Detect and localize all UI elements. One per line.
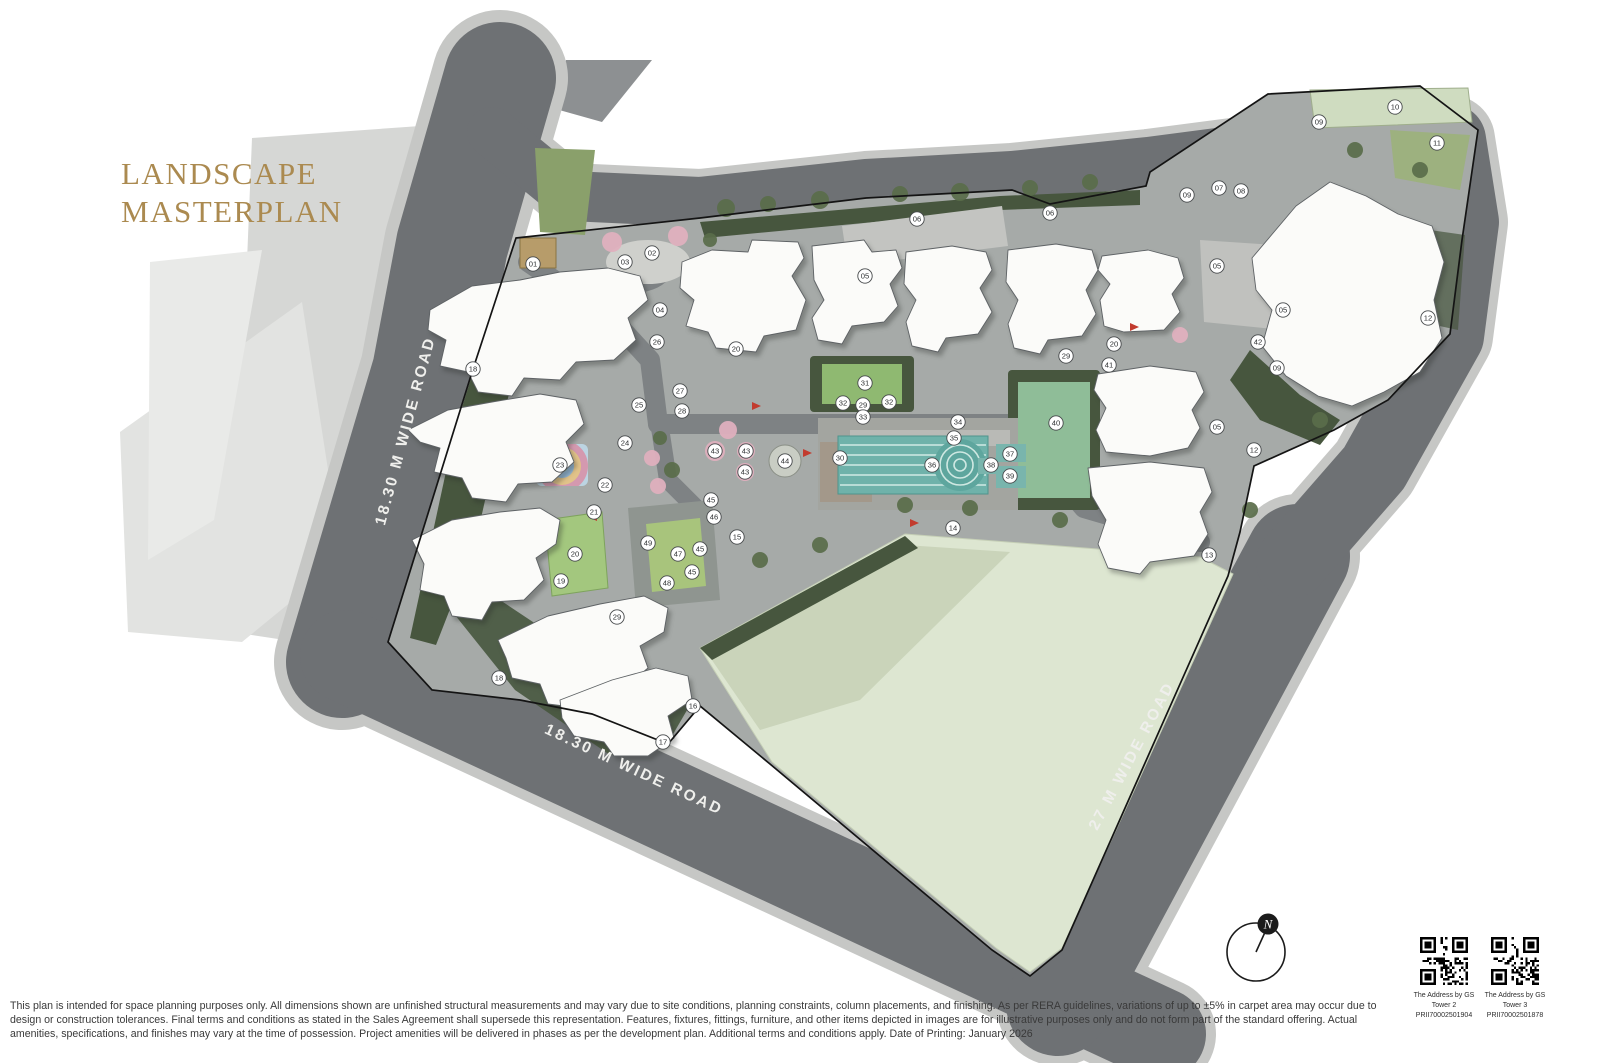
plan-marker-23: 23 <box>553 458 567 472</box>
svg-text:43: 43 <box>711 447 719 456</box>
svg-text:20: 20 <box>1110 340 1118 349</box>
svg-text:16: 16 <box>689 702 697 711</box>
svg-text:37: 37 <box>1006 450 1014 459</box>
svg-text:06: 06 <box>913 215 921 224</box>
plan-marker-20: 20 <box>568 547 582 561</box>
svg-text:43: 43 <box>742 447 750 456</box>
plan-marker-32: 32 <box>836 396 850 410</box>
plan-marker-26: 26 <box>650 335 664 349</box>
svg-text:09: 09 <box>1315 118 1323 127</box>
plan-marker-45: 45 <box>685 565 699 579</box>
svg-text:20: 20 <box>571 550 579 559</box>
disclaimer-text: This plan is intended for space planning… <box>10 999 1402 1041</box>
plan-marker-18: 18 <box>466 362 480 376</box>
plan-marker-44: 44 <box>778 454 792 468</box>
plan-marker-48: 48 <box>660 576 674 590</box>
svg-text:26: 26 <box>653 338 661 347</box>
swimming-pool-36 <box>838 436 988 494</box>
svg-text:02: 02 <box>648 249 656 258</box>
svg-text:05: 05 <box>1213 423 1221 432</box>
svg-text:09: 09 <box>1273 364 1281 373</box>
plan-marker-24: 24 <box>618 436 632 450</box>
qr-caption-tower: Tower 2 <box>1404 1001 1484 1011</box>
plan-marker-13: 13 <box>1202 548 1216 562</box>
svg-text:38: 38 <box>987 461 995 470</box>
svg-text:35: 35 <box>950 434 958 443</box>
qr-caption-project: The Address by GS <box>1475 991 1555 1001</box>
plan-marker-39: 39 <box>1003 469 1017 483</box>
svg-text:15: 15 <box>733 533 741 542</box>
plan-marker-05: 05 <box>1210 420 1224 434</box>
plan-marker-31: 31 <box>858 376 872 390</box>
plan-marker-29: 29 <box>610 610 624 624</box>
svg-text:09: 09 <box>1183 191 1191 200</box>
svg-text:33: 33 <box>859 413 867 422</box>
svg-text:40: 40 <box>1052 419 1060 428</box>
plan-marker-05: 05 <box>1276 303 1290 317</box>
qr-caption-rera: PRII70002501878 <box>1475 1011 1555 1021</box>
plan-marker-12: 12 <box>1247 443 1261 457</box>
svg-text:32: 32 <box>885 398 893 407</box>
svg-text:31: 31 <box>861 379 869 388</box>
plan-marker-20: 20 <box>1107 337 1121 351</box>
plan-marker-28: 28 <box>675 404 689 418</box>
plan-marker-10: 10 <box>1388 100 1402 114</box>
qr-caption-project: The Address by GS <box>1404 991 1484 1001</box>
svg-text:39: 39 <box>1006 472 1014 481</box>
plan-marker-16: 16 <box>686 699 700 713</box>
plan-marker-14: 14 <box>946 521 960 535</box>
qr-caption-rera: PRII70002501904 <box>1404 1011 1484 1021</box>
plan-marker-21: 21 <box>587 505 601 519</box>
svg-text:18: 18 <box>495 674 503 683</box>
svg-text:12: 12 <box>1424 314 1432 323</box>
qr-caption-tower: Tower 3 <box>1475 1001 1555 1011</box>
svg-text:19: 19 <box>557 577 565 586</box>
plan-marker-43: 43 <box>739 444 753 458</box>
svg-text:44: 44 <box>781 457 789 466</box>
plan-marker-17: 17 <box>656 735 670 749</box>
sports-court-40 <box>1018 382 1090 498</box>
svg-text:05: 05 <box>1213 262 1221 271</box>
svg-text:43: 43 <box>741 468 749 477</box>
svg-text:27: 27 <box>676 387 684 396</box>
svg-text:29: 29 <box>1062 352 1070 361</box>
plan-marker-19: 19 <box>554 574 568 588</box>
svg-text:01: 01 <box>529 260 537 269</box>
plan-marker-40: 40 <box>1049 416 1063 430</box>
svg-text:45: 45 <box>707 496 715 505</box>
plan-marker-22: 22 <box>598 478 612 492</box>
qr-code-tower-3 <box>1491 937 1539 985</box>
plan-marker-20: 20 <box>729 342 743 356</box>
qr-code-tower-2 <box>1420 937 1468 985</box>
svg-text:08: 08 <box>1237 187 1245 196</box>
plan-marker-15: 15 <box>730 530 744 544</box>
plan-marker-05: 05 <box>1210 259 1224 273</box>
qr-caption-tower-2: The Address by GS Tower 2 PRII7000250190… <box>1404 991 1484 1021</box>
plan-marker-45: 45 <box>693 542 707 556</box>
svg-text:05: 05 <box>861 272 869 281</box>
svg-text:23: 23 <box>556 461 564 470</box>
plan-marker-11: 11 <box>1430 136 1444 150</box>
svg-text:49: 49 <box>644 539 652 548</box>
page-title-line1: LANDSCAPE <box>121 155 343 193</box>
plan-marker-35: 35 <box>947 431 961 445</box>
svg-text:34: 34 <box>954 418 962 427</box>
page-title: LANDSCAPE MASTERPLAN <box>121 155 343 231</box>
qr-caption-tower-3: The Address by GS Tower 3 PRII7000250187… <box>1475 991 1555 1021</box>
plan-marker-05: 05 <box>858 269 872 283</box>
svg-text:11: 11 <box>1433 139 1441 148</box>
svg-text:30: 30 <box>836 454 844 463</box>
plan-marker-09: 09 <box>1270 361 1284 375</box>
svg-text:47: 47 <box>674 550 682 559</box>
plan-marker-33: 33 <box>856 410 870 424</box>
svg-text:24: 24 <box>621 439 629 448</box>
compass-north-label: N <box>1263 917 1274 932</box>
plan-marker-06: 06 <box>910 212 924 226</box>
plan-marker-37: 37 <box>1003 447 1017 461</box>
page-title-line2: MASTERPLAN <box>121 193 343 231</box>
svg-text:25: 25 <box>635 401 643 410</box>
north-compass-icon: N <box>1200 893 1312 1005</box>
svg-text:21: 21 <box>590 508 598 517</box>
plan-marker-09: 09 <box>1312 115 1326 129</box>
plan-marker-03: 03 <box>618 255 632 269</box>
plan-marker-43: 43 <box>738 465 752 479</box>
svg-text:14: 14 <box>949 524 957 533</box>
plan-marker-12: 12 <box>1421 311 1435 325</box>
plan-marker-06: 06 <box>1043 206 1057 220</box>
plan-marker-36: 36 <box>925 458 939 472</box>
svg-text:06: 06 <box>1046 209 1054 218</box>
plan-marker-42: 42 <box>1251 335 1265 349</box>
svg-text:17: 17 <box>659 738 667 747</box>
plan-marker-07: 07 <box>1212 181 1226 195</box>
plan-marker-38: 38 <box>984 458 998 472</box>
plan-marker-34: 34 <box>951 415 965 429</box>
svg-text:42: 42 <box>1254 338 1262 347</box>
plan-marker-32: 32 <box>882 395 896 409</box>
plan-marker-47: 47 <box>671 547 685 561</box>
svg-text:05: 05 <box>1279 306 1287 315</box>
svg-text:41: 41 <box>1105 361 1113 370</box>
svg-text:04: 04 <box>656 306 664 315</box>
plan-marker-41: 41 <box>1102 358 1116 372</box>
plan-marker-01: 01 <box>526 257 540 271</box>
plan-marker-02: 02 <box>645 246 659 260</box>
plan-marker-08: 08 <box>1234 184 1248 198</box>
svg-text:45: 45 <box>688 568 696 577</box>
svg-text:32: 32 <box>839 399 847 408</box>
plan-marker-49: 49 <box>641 536 655 550</box>
plan-marker-09: 09 <box>1180 188 1194 202</box>
plan-marker-25: 25 <box>632 398 646 412</box>
svg-text:10: 10 <box>1391 103 1399 112</box>
svg-text:29: 29 <box>613 613 621 622</box>
svg-text:48: 48 <box>663 579 671 588</box>
plan-marker-29: 29 <box>1059 349 1073 363</box>
plan-marker-45: 45 <box>704 493 718 507</box>
svg-text:46: 46 <box>710 513 718 522</box>
svg-text:20: 20 <box>732 345 740 354</box>
svg-text:22: 22 <box>601 481 609 490</box>
plan-marker-43: 43 <box>708 444 722 458</box>
plan-marker-30: 30 <box>833 451 847 465</box>
svg-text:07: 07 <box>1215 184 1223 193</box>
svg-text:03: 03 <box>621 258 629 267</box>
plan-marker-27: 27 <box>673 384 687 398</box>
plan-marker-18: 18 <box>492 671 506 685</box>
svg-text:18: 18 <box>469 365 477 374</box>
svg-text:29: 29 <box>859 401 867 410</box>
plan-marker-04: 04 <box>653 303 667 317</box>
svg-text:12: 12 <box>1250 446 1258 455</box>
plan-marker-46: 46 <box>707 510 721 524</box>
svg-text:45: 45 <box>696 545 704 554</box>
landscape-masterplan-page: 18.30 M WIDE ROAD 18.30 M WIDE ROAD 27 M… <box>0 0 1600 1063</box>
svg-text:13: 13 <box>1205 551 1213 560</box>
svg-text:36: 36 <box>928 461 936 470</box>
svg-text:28: 28 <box>678 407 686 416</box>
